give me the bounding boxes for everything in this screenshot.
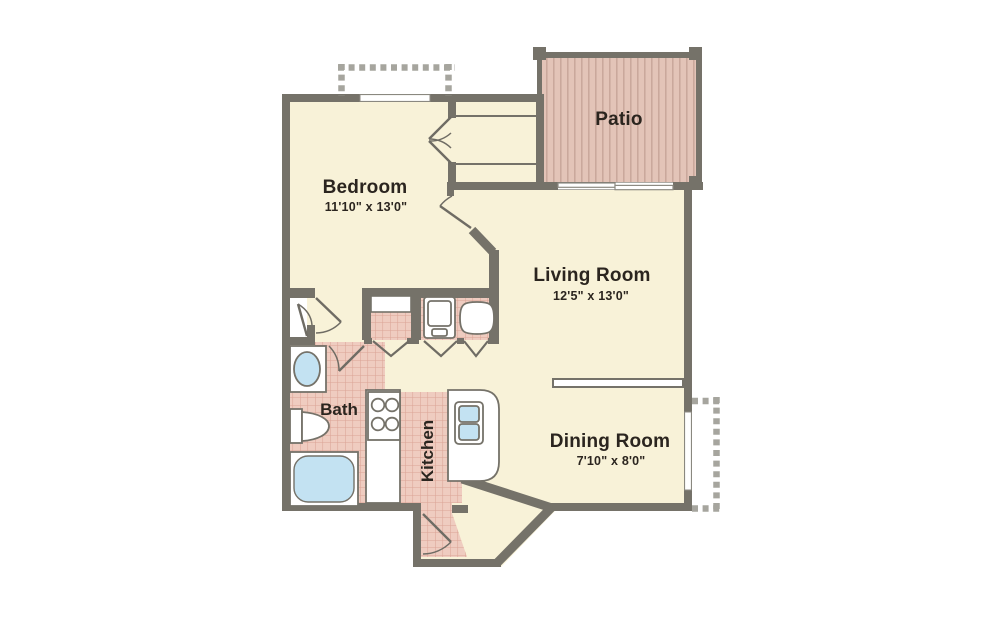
dining-room-dimensions: 7'10" x 8'0" bbox=[577, 454, 646, 468]
patio-label: Patio bbox=[595, 109, 642, 130]
floor-plan-svg: Bedroom 11'10" x 13'0" Patio Living Room… bbox=[0, 0, 998, 626]
bedroom-dimensions: 11'10" x 13'0" bbox=[325, 200, 407, 214]
wall-segment bbox=[447, 182, 544, 190]
wall-segment bbox=[364, 338, 372, 344]
dining-room-label: Dining Room bbox=[550, 431, 670, 452]
half-wall-ledge bbox=[553, 379, 683, 387]
bath-label: Bath bbox=[320, 400, 358, 419]
kitchen-tile-lower bbox=[450, 481, 462, 503]
kitchen-label: Kitchen bbox=[418, 420, 437, 482]
wall-segment bbox=[488, 338, 496, 344]
patio-rail-top bbox=[536, 52, 702, 58]
patio-rail-left bbox=[537, 58, 542, 94]
bathtub-basin bbox=[294, 456, 354, 502]
wall-segment bbox=[282, 337, 315, 345]
patio-slider-panel bbox=[558, 183, 615, 187]
washer-handle bbox=[432, 329, 447, 336]
living-room-label: Living Room bbox=[533, 265, 650, 286]
kitchen-sink-basin bbox=[459, 424, 479, 440]
patio-rail-right bbox=[696, 52, 702, 190]
dining-window bbox=[685, 412, 692, 490]
wall-segment bbox=[452, 505, 468, 513]
patio-post bbox=[533, 47, 546, 60]
wall-segment bbox=[282, 288, 315, 298]
bedroom-window bbox=[360, 95, 430, 102]
wall-segment bbox=[457, 338, 464, 344]
wall-segment bbox=[411, 296, 421, 340]
patio-slider-panel bbox=[615, 185, 673, 189]
patio-post bbox=[689, 47, 702, 60]
stove-burner bbox=[386, 418, 399, 431]
wall-segment bbox=[549, 503, 692, 511]
entry-corridor-tile bbox=[421, 503, 452, 513]
stove-burner bbox=[372, 418, 385, 431]
wall-segment bbox=[362, 288, 371, 340]
stove-burner bbox=[372, 399, 385, 412]
floor-plan-page: Bedroom 11'10" x 13'0" Patio Living Room… bbox=[0, 0, 998, 626]
toilet-tank bbox=[290, 409, 302, 443]
linen-shelf bbox=[371, 296, 411, 312]
bedroom-label: Bedroom bbox=[323, 177, 408, 198]
living-room-dimensions: 12'5" x 13'0" bbox=[553, 289, 629, 303]
wall-segment bbox=[413, 559, 501, 567]
wall-segment bbox=[536, 94, 544, 190]
laundry-tub bbox=[460, 302, 494, 334]
bath-sink bbox=[294, 352, 320, 386]
stove-burner bbox=[386, 399, 399, 412]
wall-segment bbox=[282, 94, 290, 511]
wall-segment bbox=[413, 503, 421, 567]
kitchen-sink-basin bbox=[459, 406, 479, 422]
wall-segment bbox=[448, 102, 456, 118]
patio-post bbox=[689, 176, 702, 189]
wall-segment bbox=[448, 162, 456, 186]
washer-door bbox=[428, 301, 451, 326]
